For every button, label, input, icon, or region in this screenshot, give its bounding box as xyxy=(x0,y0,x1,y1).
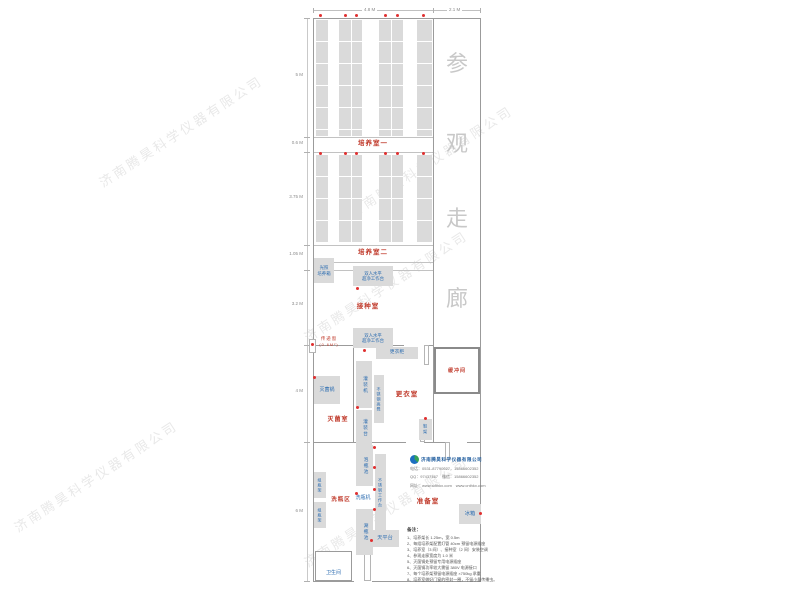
sterilizer-box: 灭菌锅 xyxy=(314,376,340,404)
dim-left-06m: 0.6 M xyxy=(283,140,303,145)
dim-tick xyxy=(304,152,310,153)
dim-tick xyxy=(433,8,434,13)
notes-block: 备注： 1、培养架长 1.25m，宽 0.5m 2、每组培养架配置灯管 40cm… xyxy=(407,527,483,583)
filling-table-box: 灌装台 xyxy=(356,410,372,445)
dim-tick xyxy=(313,8,314,13)
outlet-dot xyxy=(363,349,366,352)
company-logo-icon xyxy=(410,455,419,464)
dim-left-105m: 1.05 M xyxy=(283,251,303,256)
bottle-rack-box-2: 组瓶架 xyxy=(314,502,326,528)
outlet-dot xyxy=(355,152,358,155)
note-item: 2、每组培养架配置灯管 40cm 预留电源插座 xyxy=(407,541,483,547)
outlet-dot xyxy=(344,152,347,155)
shoe-rack-box: 鞋架 xyxy=(419,419,432,440)
note-item: 6、灭菌锅功率较大需留 380V 电源接口 xyxy=(407,565,483,571)
floorplan-canvas: 济南腾昊科学仪器有限公司 济南腾昊科学仪器有限公司 济南腾昊科学仪器有限公司 济… xyxy=(0,0,800,600)
outlet-dot xyxy=(384,152,387,155)
transfer-window-size: (0.6M²) xyxy=(316,343,342,348)
outlet-dot xyxy=(373,446,376,449)
outlet-dot xyxy=(422,14,425,17)
wall-sterilization-east xyxy=(353,345,354,442)
company-phone: 电话：0531-87790627，15866602352 xyxy=(410,466,490,472)
dim-width-corridor: 2.1 M xyxy=(447,7,462,12)
bottle-rack-box-1: 组瓶架 xyxy=(314,472,326,498)
outlet-dot xyxy=(319,14,322,17)
dim-tick xyxy=(304,18,310,19)
room-label-preparation: 准备室 xyxy=(406,498,450,506)
clean-bench-box-1: 双人水平 超净工作台 xyxy=(353,266,393,286)
outlet-dot xyxy=(373,508,376,511)
company-info-block: 济南腾昊科学仪器有限公司 电话：0531-87790627，1586660235… xyxy=(410,455,490,489)
company-name: 济南腾昊科学仪器有限公司 xyxy=(421,457,482,463)
soak-pool-box: 泡瓶池 xyxy=(356,445,373,486)
dim-left-6m: 6 M xyxy=(283,508,303,513)
outlet-dot xyxy=(344,14,347,17)
fridge-box: 冰箱 xyxy=(459,504,481,524)
door-leaf xyxy=(424,345,429,365)
bottle-washer-label: 洗瓶机 xyxy=(350,495,376,501)
room-label-culture1: 培养室一 xyxy=(343,140,403,148)
outlet-dot xyxy=(355,14,358,17)
door-leaf xyxy=(364,552,371,581)
steel-stool-box: 不锈钢高凳 xyxy=(374,375,384,423)
dim-left-5m: 5 M xyxy=(283,72,303,77)
dim-width-main: 4.8 M xyxy=(362,7,377,12)
outlet-dot xyxy=(370,539,373,542)
dim-left-4m: 4 M xyxy=(283,388,303,393)
light-incubator-box: 光照 培养箱 xyxy=(314,258,334,283)
room-label-changing: 更衣室 xyxy=(386,391,428,399)
company-web: 网址：www.sdthkx.com www.cnthkx.com xyxy=(410,483,490,489)
outlet-dot xyxy=(311,343,314,346)
room-label-buffer: 缓冲间 xyxy=(448,368,466,374)
outlet-dot xyxy=(355,492,358,495)
outlet-dot xyxy=(396,14,399,17)
transfer-window-shape xyxy=(309,339,316,353)
company-qq: QQ：97437467 微信：15866602352 xyxy=(410,474,490,480)
room-label-transfer-window: 传递窗 xyxy=(316,336,342,341)
room-label-inoculation: 接种室 xyxy=(348,303,388,311)
outlet-dot xyxy=(424,417,427,420)
outlet-dot xyxy=(313,376,316,379)
dim-tick xyxy=(304,270,310,271)
dim-left-32m: 3.2 M xyxy=(283,301,303,306)
outlet-dot xyxy=(373,488,376,491)
watermark-text: 济南腾昊科学仪器有限公司 xyxy=(95,70,266,191)
outlet-dot xyxy=(373,466,376,469)
outlet-dot xyxy=(422,152,425,155)
steel-worktable-box: 不锈钢工作台 xyxy=(375,454,386,532)
toilet-box: 卫生间 xyxy=(315,551,352,581)
clean-bench-box-2: 双人水平 超净工作台 xyxy=(353,328,393,348)
note-item: 7、每个培养架预留电源插座 ×750kg 承重 xyxy=(407,571,483,577)
dim-tick xyxy=(304,137,310,138)
dim-tick xyxy=(480,8,481,13)
buffer-room-box: 缓冲间 xyxy=(434,347,480,394)
note-item: 3、培养室（3 间）、接种室（2 间）安装空调 xyxy=(407,547,483,553)
outlet-dot xyxy=(396,152,399,155)
room-label-sterilization: 灭菌室 xyxy=(318,417,358,424)
outlet-dot xyxy=(356,406,359,409)
note-item: 8、培养室做好门窗的密封一圈，不留小量传播虫。 xyxy=(407,577,483,583)
dim-tick xyxy=(304,245,310,246)
outlet-dot xyxy=(356,287,359,290)
watermark-text: 济南腾昊科学仪器有限公司 xyxy=(10,415,181,536)
balance-table-box: 天平台 xyxy=(371,530,399,547)
dim-tick xyxy=(304,581,310,582)
filling-machine-box: 灌装机 xyxy=(356,361,372,408)
outlet-dot xyxy=(479,512,482,515)
dim-tick xyxy=(304,442,310,443)
notes-title: 备注： xyxy=(407,527,483,533)
outlet-dot xyxy=(384,14,387,17)
dimension-line-left xyxy=(307,18,308,582)
room-label-culture2: 培养室二 xyxy=(343,249,403,257)
dim-left-375m: 3.75 M xyxy=(283,194,303,199)
outlet-dot xyxy=(319,152,322,155)
wardrobe-box: 更衣柜 xyxy=(376,347,418,359)
